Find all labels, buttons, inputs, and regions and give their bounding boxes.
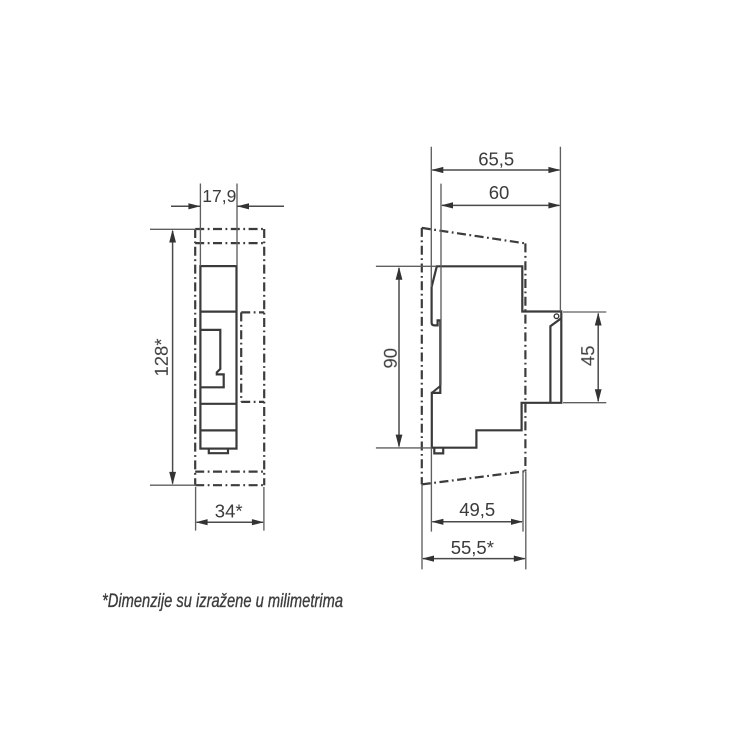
svg-text:55,5*: 55,5*: [451, 537, 494, 558]
svg-text:60: 60: [489, 182, 510, 203]
svg-text:128*: 128*: [151, 338, 172, 376]
svg-text:34*: 34*: [215, 500, 243, 521]
svg-text:65,5: 65,5: [478, 149, 514, 170]
svg-text:90: 90: [380, 348, 401, 369]
svg-text:45: 45: [577, 346, 598, 367]
svg-text:17,9: 17,9: [202, 186, 236, 206]
svg-text:*Dimenzije su izražene u milim: *Dimenzije su izražene u milimetrima: [102, 590, 343, 612]
svg-text:49,5: 49,5: [459, 499, 495, 520]
